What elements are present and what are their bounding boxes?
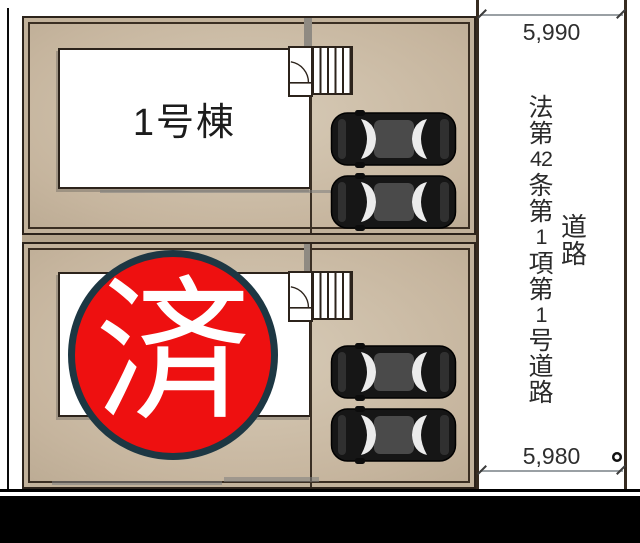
left-border-line (7, 8, 9, 492)
dimension-bottom-line (480, 470, 623, 472)
dimension-top-line (480, 14, 623, 16)
bottom-black-band (0, 496, 640, 543)
road-regulation-text: 法第42条第1項第1号道路 (524, 95, 558, 406)
shadow-line (52, 481, 222, 485)
stairs-icon (312, 46, 353, 95)
building-1: 1号棟 (58, 48, 311, 189)
plot-unit-1: 1号棟 (22, 16, 476, 235)
car-icon (330, 110, 457, 168)
site-plan: 1号棟 (0, 0, 640, 543)
page-divider-line (0, 489, 640, 492)
building-1-label: 1号棟 (133, 91, 236, 146)
dimension-bottom-label: 5,980 (479, 443, 624, 470)
road-label: 道路 (559, 214, 589, 268)
entry-door-icon (288, 271, 313, 322)
dimension-top-label: 5,990 (479, 19, 624, 46)
shadow-line (100, 190, 333, 193)
wall-line (310, 97, 312, 233)
car-icon (330, 173, 457, 231)
stairs-icon (312, 271, 353, 320)
porch-mark (304, 18, 312, 48)
road-area: 5,990 法第42条第1項第1号道路 道路 5,980 (476, 0, 627, 490)
shadow-line (224, 477, 319, 482)
car-icon (330, 343, 457, 401)
entry-door-icon (288, 46, 313, 97)
car-icon (330, 406, 457, 464)
survey-point-dot (612, 452, 622, 462)
sold-stamp-text: 済 (95, 275, 251, 431)
sold-stamp: 済 (68, 250, 278, 460)
